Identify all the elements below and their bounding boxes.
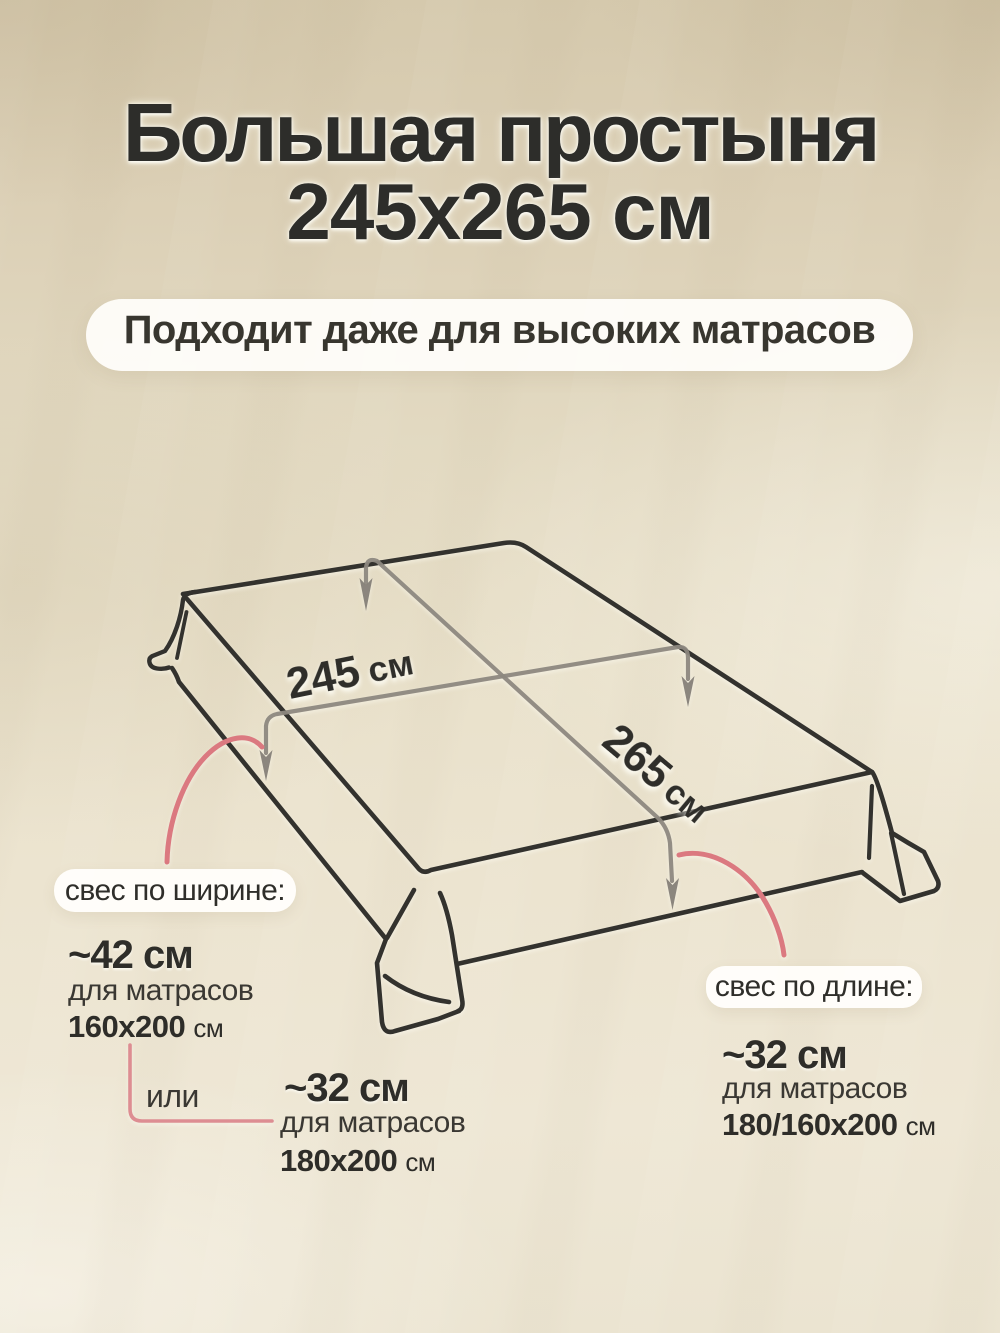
svg-text:245см: 245см bbox=[282, 635, 417, 708]
